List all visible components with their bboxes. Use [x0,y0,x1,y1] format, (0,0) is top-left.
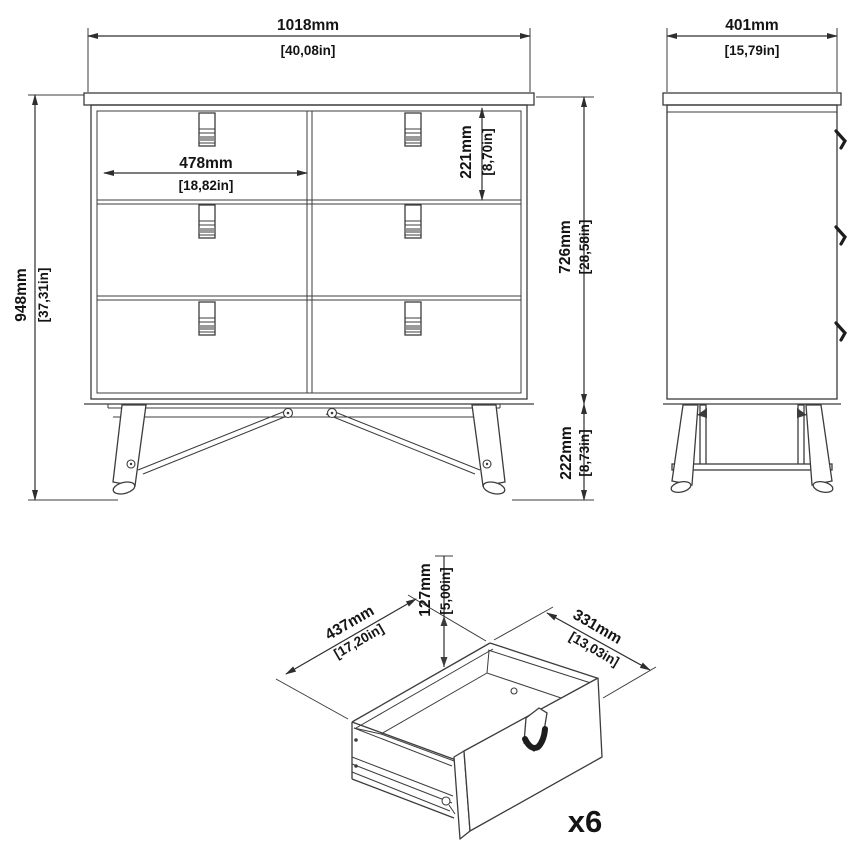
front-legs [112,405,506,496]
drawer-view: 437mm [17,20in] 331mm [13,03in] 127mm [5… [276,556,656,839]
dim-drawer-width-in: [18,82in] [179,178,234,193]
dresser-dimension-drawing: 1018mm [40,08in] 948mm [37,31in] 478mm [… [0,0,860,849]
dim-front-height-in: [37,31in] [36,268,51,323]
screw-icon [511,688,517,694]
rail-roller-icon [442,797,450,805]
drawer-rim-back-left [352,643,490,722]
dim-drawer-width-front: 478mm [18,82in] [104,155,307,193]
dim-body-height-in: [28,58in] [577,220,592,275]
side-legs [670,405,834,494]
dim-leg-height: 222mm [8,73in] [512,404,594,500]
front-right-brace [330,410,480,470]
front-right-leg [472,405,505,486]
dim-body-height-mm: 726mm [557,220,574,273]
side-panel [667,105,837,399]
side-front-foot [812,480,834,494]
dim-side-depth-in: [15,79in] [725,43,780,58]
dim-drawer-height-mm: 221mm [458,125,475,178]
dim-front-width-mm: 1018mm [277,17,339,34]
handle-icon [199,205,215,238]
dim-leg-height-in: [8,73in] [577,429,592,476]
screw-icon [354,738,358,742]
side-front-leg [806,405,832,485]
dim-front-height-mm: 948mm [13,268,30,321]
side-rear-leg [672,405,698,485]
dim-drawer-height-in: [5,00in] [438,567,453,614]
side-top-panel [663,93,841,105]
dim-drawer-depth: 437mm [17,20in] [276,595,486,719]
front-view: 1018mm [40,08in] 948mm [37,31in] 478mm [… [13,17,594,500]
side-rear-foot [670,480,692,494]
dim-front-height: 948mm [37,31in] [13,95,118,500]
dim-drawer-height-mm: 127mm [417,563,434,616]
handle-icon [405,205,421,238]
drawer-strap-handle [524,708,547,751]
drawer-slide-rail [352,757,453,796]
dim-body-height: 726mm [28,58in] [536,97,594,404]
handle-icon [405,302,421,335]
dim-front-width: 1018mm [40,08in] [88,17,530,92]
dim-drawer-height-front: 221mm [8,70in] [458,108,495,200]
front-top-panel [84,93,534,105]
drawer-rim-left-wall [352,722,456,760]
dim-front-width-in: [40,08in] [281,43,336,58]
side-stretcher-bar [672,464,832,470]
screw-icon [354,764,358,768]
dim-side-depth-mm: 401mm [725,17,778,34]
dim-leg-height-mm: 222mm [558,426,575,479]
drawer-quantity-label: x6 [568,804,602,839]
side-view: 401mm [15,79in] [663,17,845,494]
handle-icon [199,113,215,146]
drawer-left-side [352,722,455,818]
handle-icon [199,302,215,335]
handle-icon [405,113,421,146]
dim-side-depth: 401mm [15,79in] [667,17,837,92]
dim-drawer-width-mm: 478mm [179,155,232,172]
drawer-handles-front [199,113,421,335]
front-left-brace [138,410,288,470]
technical-drawing-page: 1018mm [40,08in] 948mm [37,31in] 478mm [… [0,0,860,849]
dim-drawer-height-in: [8,70in] [480,128,495,175]
